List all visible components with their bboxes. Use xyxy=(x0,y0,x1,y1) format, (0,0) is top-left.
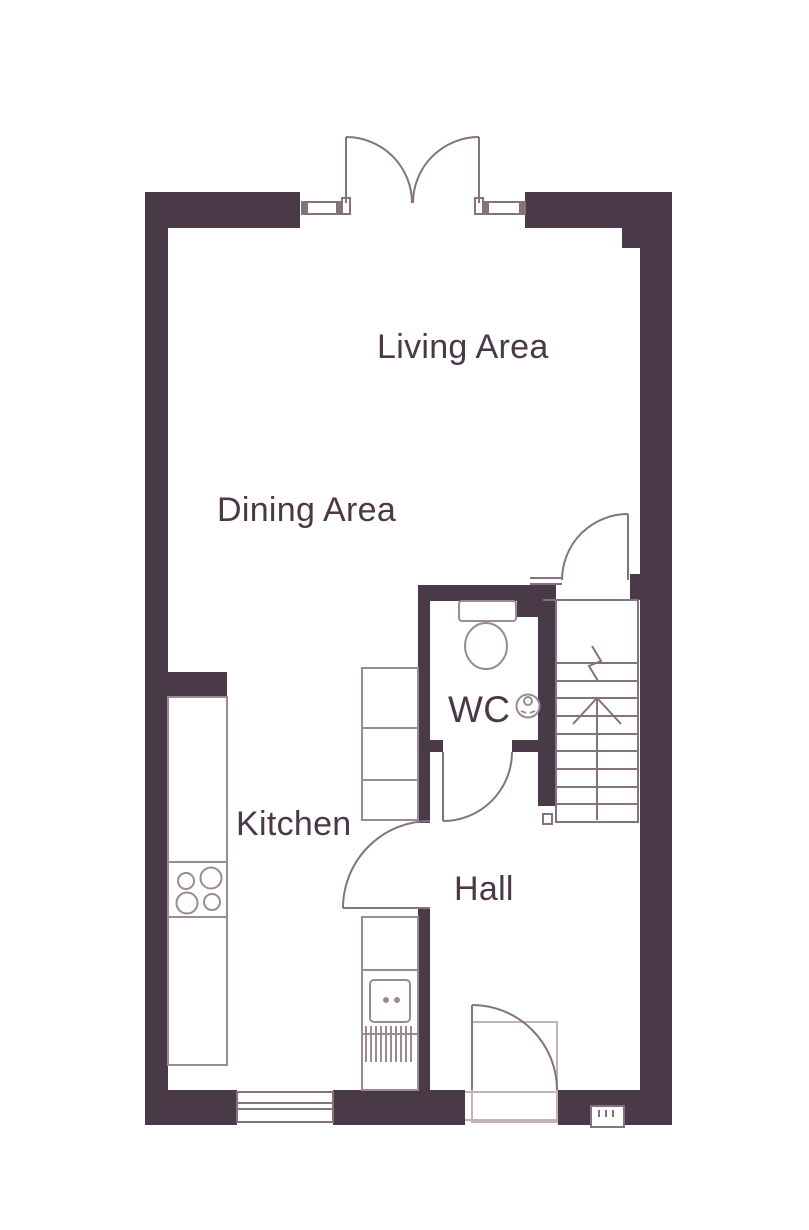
wall-hall-kitchen-lower xyxy=(418,908,430,1090)
hob xyxy=(177,868,222,914)
wall-wc-south-west-stub xyxy=(418,740,443,752)
wall-stub-kitchen-left xyxy=(145,672,227,697)
front-door xyxy=(465,1005,557,1122)
wall-stairs-west xyxy=(538,601,556,806)
worktop-left xyxy=(168,697,227,1065)
floor-plan-drawing xyxy=(0,0,809,1230)
wc-door xyxy=(443,752,512,821)
room-label-dining-area: Dining Area xyxy=(217,493,396,527)
wall-top-right xyxy=(525,192,672,228)
room-label-hall: Hall xyxy=(454,872,514,906)
living-area-door xyxy=(530,514,628,584)
wall-bottom-middle xyxy=(333,1090,465,1125)
wall-right xyxy=(640,228,672,1125)
wall-wc-west xyxy=(418,585,430,823)
room-label-wc: WC xyxy=(448,691,510,728)
sidelight-window-left xyxy=(302,202,342,214)
sidelight-window-right xyxy=(483,202,525,214)
staircase-up xyxy=(543,600,638,824)
worktop-right-upper xyxy=(362,668,418,820)
french-doors xyxy=(342,137,483,214)
stair-newel xyxy=(543,814,552,824)
wash-basin xyxy=(517,695,540,718)
floor-plan: Living Area Dining Area Kitchen WC Hall xyxy=(0,0,809,1230)
pier-top-right xyxy=(622,228,640,248)
room-label-kitchen: Kitchen xyxy=(236,807,352,841)
wall-wc-south-east-stub xyxy=(512,740,557,752)
sink-with-drainer xyxy=(362,980,418,1062)
kitchen-window-bottom xyxy=(237,1092,333,1122)
wall-recess xyxy=(591,1106,624,1127)
wall-left xyxy=(145,192,168,1125)
wall-landing-hinge-block xyxy=(630,574,640,600)
kitchen-fixtures xyxy=(168,668,418,1090)
kitchen-door xyxy=(343,821,430,908)
toilet xyxy=(459,601,516,669)
wall-wc-north xyxy=(418,585,556,601)
wall-bottom-left xyxy=(145,1090,237,1125)
room-label-living-area: Living Area xyxy=(377,330,549,364)
wall-top-left xyxy=(145,192,300,228)
